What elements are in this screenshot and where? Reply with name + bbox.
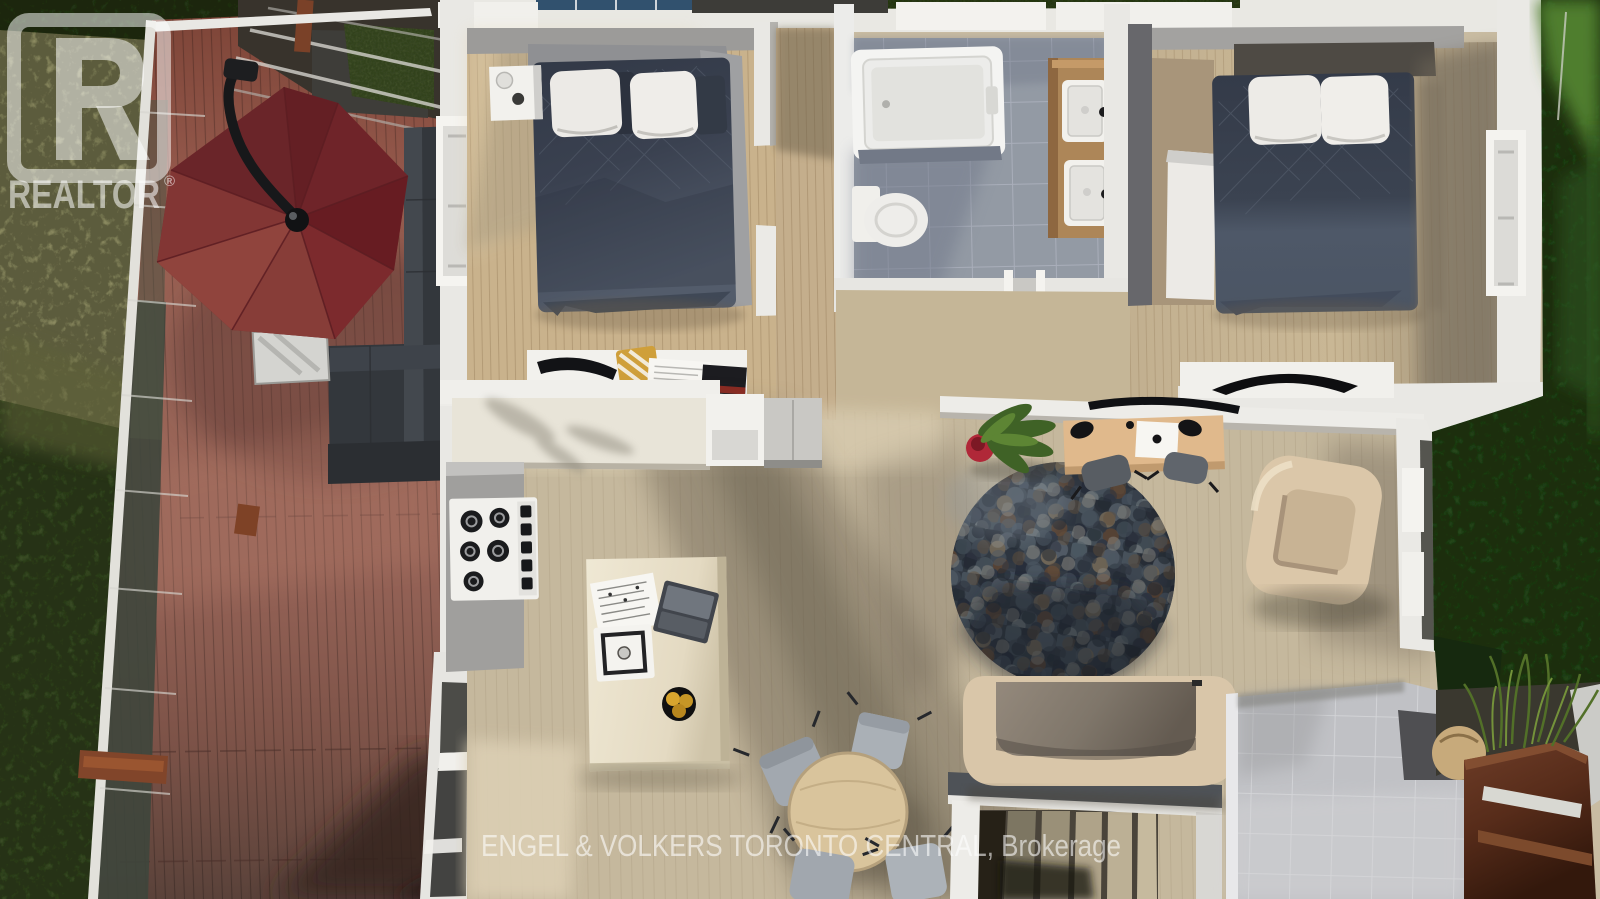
svg-text:REALTOR: REALTOR [8,173,160,217]
svg-text:ENGEL & VOLKERS TORONTO CENTRA: ENGEL & VOLKERS TORONTO CENTRAL, Brokera… [481,828,1121,863]
svg-text:®: ® [164,173,175,190]
